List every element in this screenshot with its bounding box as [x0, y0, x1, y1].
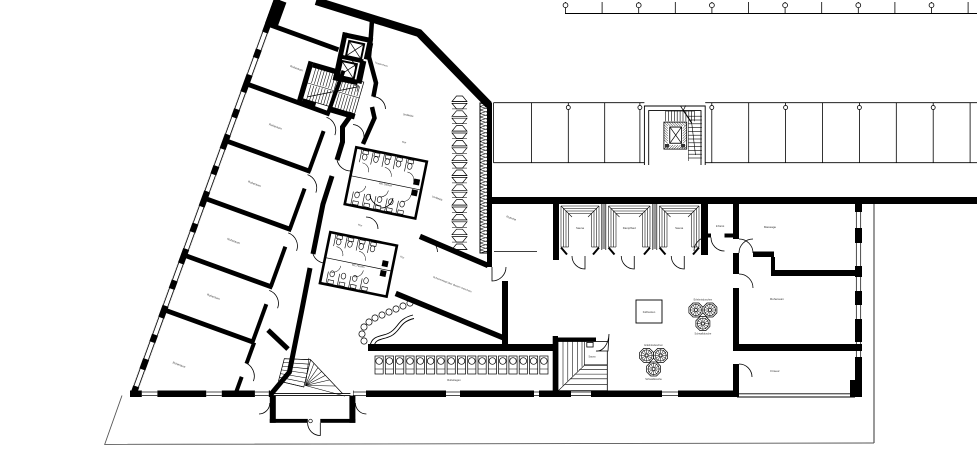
svg-text:Flur: Flur	[400, 255, 405, 259]
svg-text:Umkleide: Umkleide	[432, 194, 444, 202]
svg-text:Ruheraum: Ruheraum	[172, 361, 187, 370]
svg-text:Flur: Flur	[358, 224, 363, 228]
svg-text:WC Damen: WC Damen	[379, 181, 393, 188]
svg-text:Ruheraum: Ruheraum	[268, 122, 283, 131]
svg-text:Dampfbad: Dampfbad	[623, 226, 636, 230]
svg-text:Schwalldusche: Schwalldusche	[645, 378, 662, 381]
svg-text:Ruheraum: Ruheraum	[227, 237, 242, 246]
svg-text:Treppenhaus: Treppenhaus	[374, 61, 389, 68]
svg-text:Ruheraum: Ruheraum	[206, 293, 221, 302]
svg-text:Friseur: Friseur	[770, 369, 779, 373]
svg-text:Sauna: Sauna	[675, 226, 684, 230]
svg-text:Ruheraum: Ruheraum	[247, 180, 262, 189]
svg-text:Ruheraum: Ruheraum	[290, 64, 305, 73]
svg-text:Flur: Flur	[402, 141, 407, 145]
svg-text:Infrarot: Infrarot	[716, 224, 725, 228]
svg-text:Umkleide: Umkleide	[403, 112, 415, 118]
svg-text:Schwalldusche: Schwalldusche	[695, 333, 712, 336]
svg-text:Erlebnisduschen: Erlebnisduschen	[644, 344, 663, 347]
svg-text:Sauna: Sauna	[576, 226, 585, 230]
svg-text:Sauna: Sauna	[589, 356, 597, 359]
svg-text:Fußbecken: Fußbecken	[643, 311, 656, 314]
svg-text:Massage: Massage	[764, 225, 777, 229]
svg-text:Ruheraum: Ruheraum	[770, 297, 785, 301]
svg-text:WC Herren: WC Herren	[351, 263, 365, 270]
svg-text:Schwimmbad über diesem Geschos: Schwimmbad über diesem Geschoss	[432, 276, 472, 294]
svg-text:Ruheliegen: Ruheliegen	[447, 378, 461, 382]
svg-text:Erlebnisduschen: Erlebnisduschen	[694, 299, 713, 302]
svg-text:Rutsche: Rutsche	[506, 214, 517, 221]
